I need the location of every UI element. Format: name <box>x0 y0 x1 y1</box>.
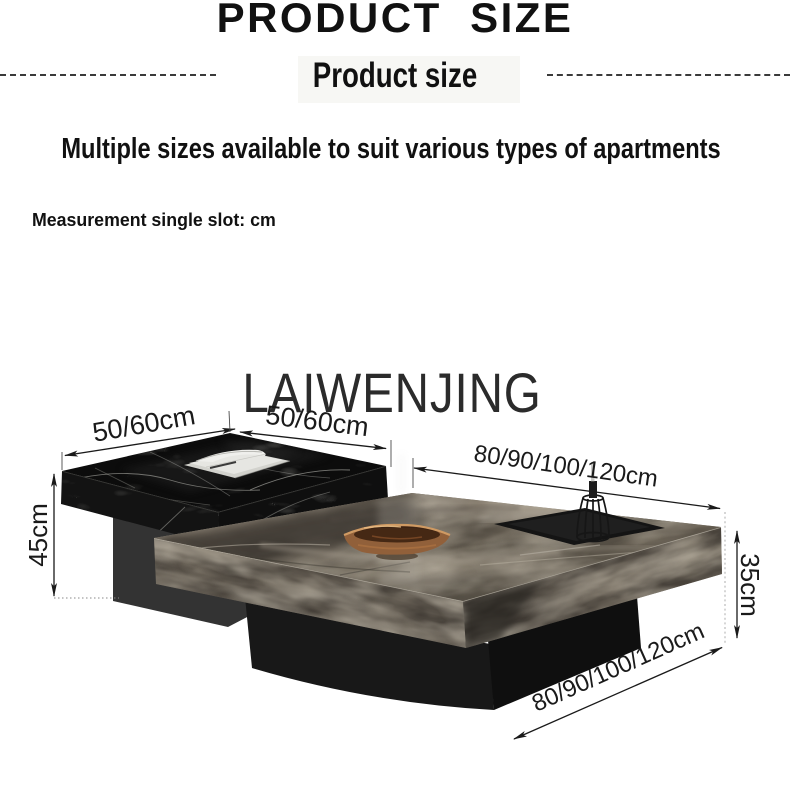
svg-text:45cm: 45cm <box>23 503 53 567</box>
svg-text:50/60cm: 50/60cm <box>90 400 197 448</box>
svg-text:80/90/100/120cm: 80/90/100/120cm <box>472 440 659 493</box>
svg-text:35cm: 35cm <box>735 553 765 617</box>
